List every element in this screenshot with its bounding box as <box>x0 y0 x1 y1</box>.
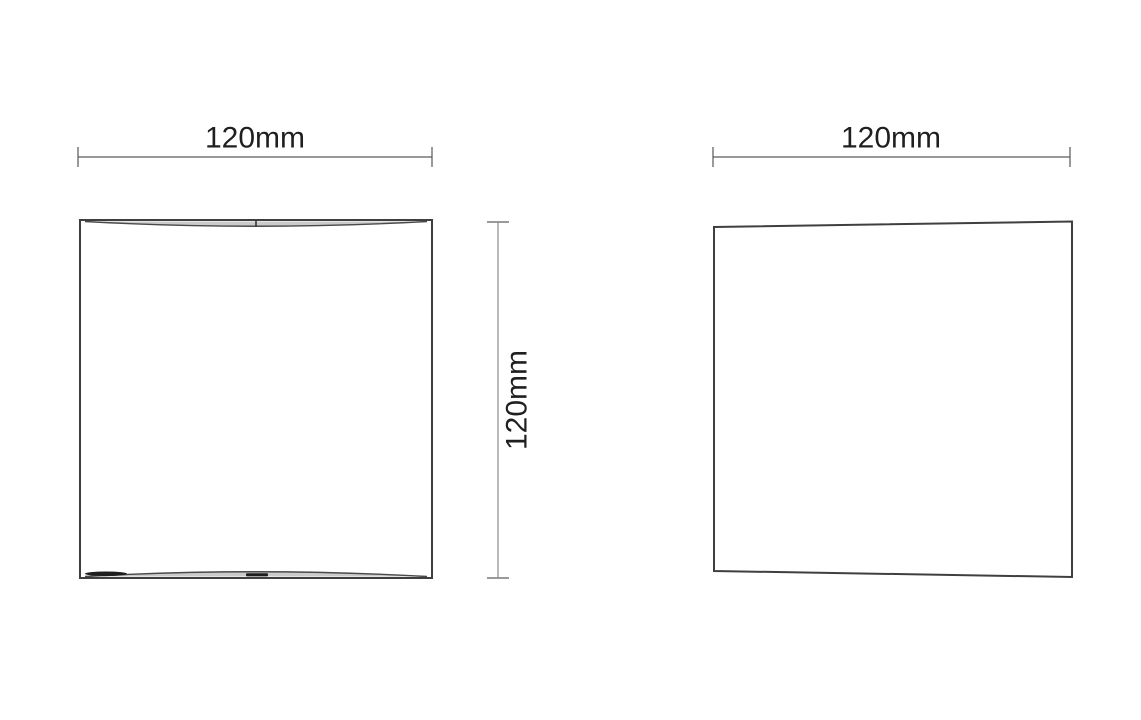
front-width-dimension-label: 120mm <box>205 122 305 155</box>
front-width-dimension: 120mm <box>78 122 432 168</box>
front-bottom-aperture-detail-left <box>85 572 127 577</box>
side-width-dimension-label: 120mm <box>841 122 941 155</box>
front-height-dimension: 120mm <box>487 222 534 578</box>
side-view-outline <box>714 222 1072 578</box>
front-view-outline <box>80 220 432 578</box>
front-view: 120mm 120mm <box>78 122 534 579</box>
front-height-dimension-label: 120mm <box>501 350 534 450</box>
dimension-drawing: 120mm 120mm <box>0 0 1141 720</box>
drawing-canvas: 120mm 120mm <box>0 0 1141 720</box>
front-bottom-aperture-detail-center <box>246 573 268 576</box>
side-width-dimension: 120mm <box>713 122 1070 168</box>
side-view: 120mm <box>713 122 1072 578</box>
